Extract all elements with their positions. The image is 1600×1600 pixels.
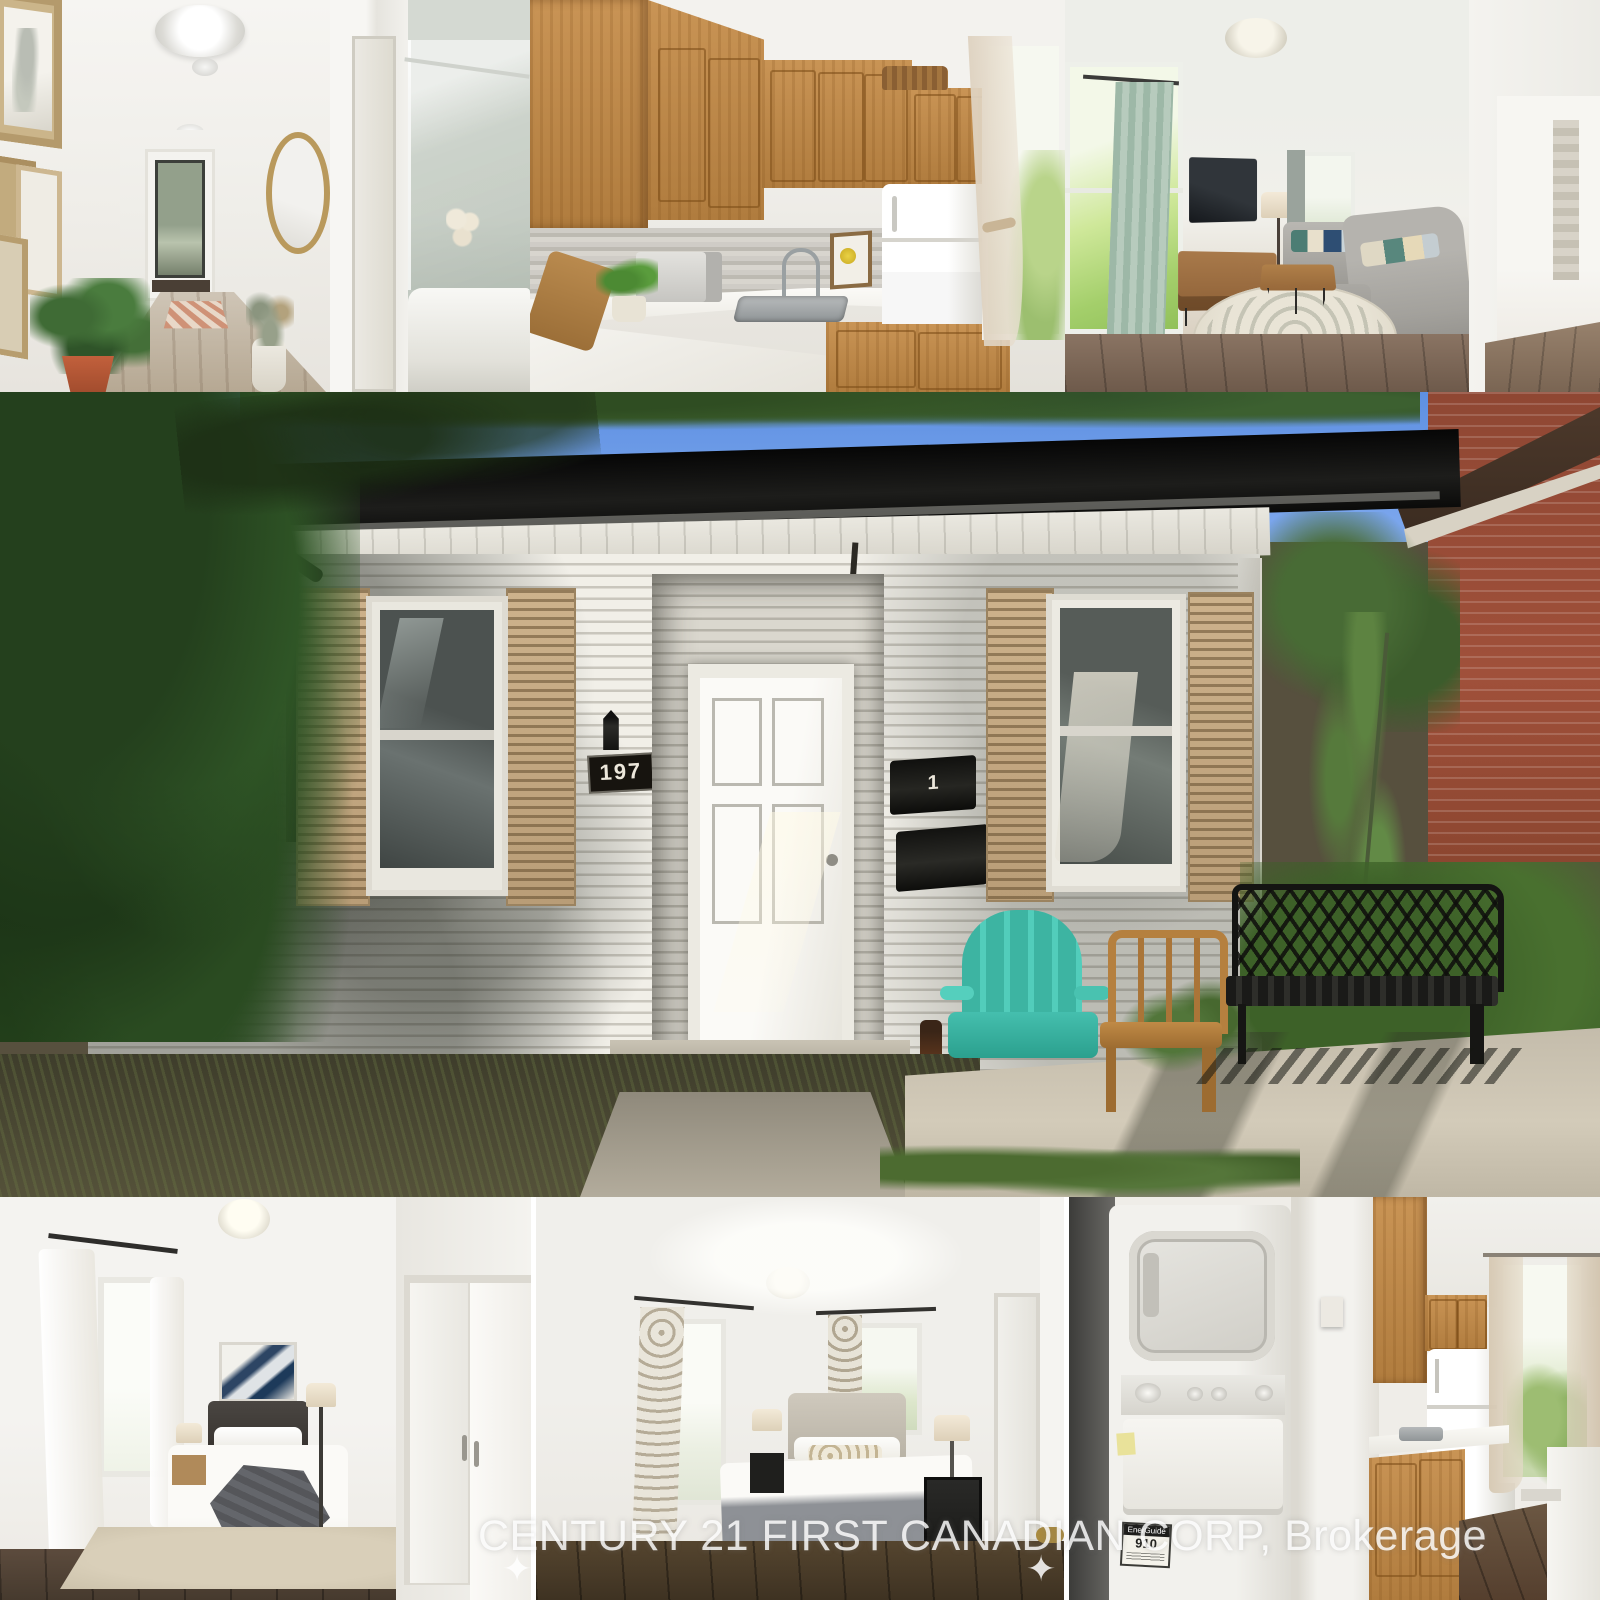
shutter-left xyxy=(986,588,1054,902)
terracotta-pot xyxy=(62,356,114,392)
round-mirror xyxy=(266,132,330,254)
kitchen-sink xyxy=(733,296,849,322)
refrigerator xyxy=(882,184,992,324)
door-panel xyxy=(772,698,824,786)
abstract-art xyxy=(222,1345,294,1399)
bathroom-door-panel xyxy=(352,36,396,392)
sheer-curtain-left xyxy=(38,1249,105,1569)
basil-pot xyxy=(612,296,646,322)
baseboard-vent xyxy=(1521,1489,1561,1501)
wood-chair-seat xyxy=(1100,1022,1222,1048)
adirondack-arm-left xyxy=(940,986,974,1000)
cabinet-door xyxy=(708,58,760,208)
towel-rosettes xyxy=(446,206,480,250)
coffee-table-legs xyxy=(1267,288,1329,314)
hall-runner-rug xyxy=(164,301,228,328)
white-appliance xyxy=(1547,1447,1600,1600)
shutter-right xyxy=(506,588,576,906)
table-lamp xyxy=(176,1423,202,1443)
bench-shadow xyxy=(1196,1048,1524,1084)
upper-cabinet-tall xyxy=(1373,1197,1427,1383)
photo-living-room xyxy=(1065,0,1600,392)
control-knob xyxy=(1135,1383,1161,1403)
front-door-glass xyxy=(155,160,205,278)
thermostat xyxy=(1321,1297,1343,1327)
floor-lamp-pole xyxy=(319,1407,323,1527)
sticky-note xyxy=(1116,1432,1135,1455)
dryer-door-handle xyxy=(1143,1253,1159,1317)
bathtub xyxy=(408,288,530,392)
cabinet-door xyxy=(864,74,908,182)
ceiling-light xyxy=(1225,18,1287,58)
dried-stem-vase xyxy=(252,338,286,392)
kitchen-faucet xyxy=(782,248,820,296)
storage-basket xyxy=(882,66,948,90)
photo-bedroom-1 xyxy=(0,1197,531,1600)
cabinet-drawer xyxy=(836,330,916,388)
fridge-handle xyxy=(892,196,897,232)
curtain-rod xyxy=(1483,1253,1600,1257)
kitchen-sink xyxy=(1399,1427,1443,1441)
brokerage-watermark: CENTURY 21 FIRST CANADIAN CORP, Brokerag… xyxy=(478,1512,1487,1561)
wood-chair-back xyxy=(1108,930,1228,1034)
sage-curtain xyxy=(1106,82,1173,348)
nightstand xyxy=(172,1455,206,1485)
closet-handle xyxy=(474,1441,479,1467)
washer-lid xyxy=(1123,1419,1283,1515)
fridge-handle xyxy=(1435,1359,1439,1393)
bedroom-door xyxy=(994,1293,1040,1543)
nightstand-left xyxy=(750,1453,784,1493)
closet-handle xyxy=(462,1435,467,1461)
photo-exterior: 197 1 xyxy=(0,392,1600,1197)
kitchen-tall-cabinet xyxy=(530,0,648,228)
cabinet-door xyxy=(1457,1299,1487,1350)
sparkle-icon: ✦ xyxy=(502,1548,532,1590)
doorway-curtain xyxy=(1553,120,1579,280)
cabinet-door xyxy=(1429,1299,1458,1350)
photo-kitchen xyxy=(530,0,1065,392)
living-floor xyxy=(1065,334,1485,392)
door-panel xyxy=(712,698,762,786)
doorway-opening xyxy=(1497,96,1600,342)
smoke-detector xyxy=(192,58,218,76)
sparkle-icon: ✦ xyxy=(1026,1548,1056,1590)
sidewalk-grass-edge xyxy=(880,1138,1300,1197)
adirondack-chair-seat xyxy=(948,1012,1098,1058)
window-sash-bar xyxy=(380,730,494,740)
floor-lamp xyxy=(306,1383,336,1407)
control-knob xyxy=(1187,1387,1203,1401)
lamp-pole-right xyxy=(950,1441,954,1479)
door-mat xyxy=(152,280,210,292)
listing-photo-collage: 197 1 xyxy=(0,0,1600,1600)
gallery-frame xyxy=(0,232,28,359)
window-sash-bar xyxy=(1060,726,1172,736)
mailbox-top: 1 xyxy=(890,755,976,815)
table-lamp-left xyxy=(752,1409,782,1431)
center-walkway xyxy=(580,1092,910,1197)
control-knob xyxy=(1255,1385,1273,1401)
ceiling-light xyxy=(155,5,245,57)
fridge-divider xyxy=(882,238,992,242)
adirondack-arm-right xyxy=(1074,986,1110,1000)
lemon-art xyxy=(840,248,856,264)
shag-rug xyxy=(60,1527,440,1589)
cabinet-door xyxy=(818,72,864,182)
cabinet-door xyxy=(770,70,816,182)
dried-stems xyxy=(246,288,294,346)
botanical-print xyxy=(12,28,42,112)
photo-hallway xyxy=(0,0,530,392)
metal-bench-seat xyxy=(1226,976,1498,1006)
cabinet-door xyxy=(658,48,706,202)
coffee-table xyxy=(1260,264,1337,290)
shutter-right xyxy=(1188,592,1254,902)
mailbox-bottom xyxy=(896,824,988,892)
mailbox-number: 1 xyxy=(927,772,938,795)
shower-glass xyxy=(408,40,530,290)
ceiling-glow xyxy=(646,1197,966,1317)
wall-tv xyxy=(1189,157,1257,223)
adirondack-legs xyxy=(956,1056,1090,1112)
control-knob xyxy=(1211,1387,1227,1401)
house-number: 197 xyxy=(599,758,643,785)
ceiling-light xyxy=(218,1199,270,1239)
table-lamp-right xyxy=(934,1415,970,1441)
cabinet-door xyxy=(914,94,956,182)
house-number-plaque: 197 xyxy=(587,752,655,793)
closet-door-left xyxy=(410,1283,468,1583)
tan-curtain-left xyxy=(1489,1253,1523,1493)
